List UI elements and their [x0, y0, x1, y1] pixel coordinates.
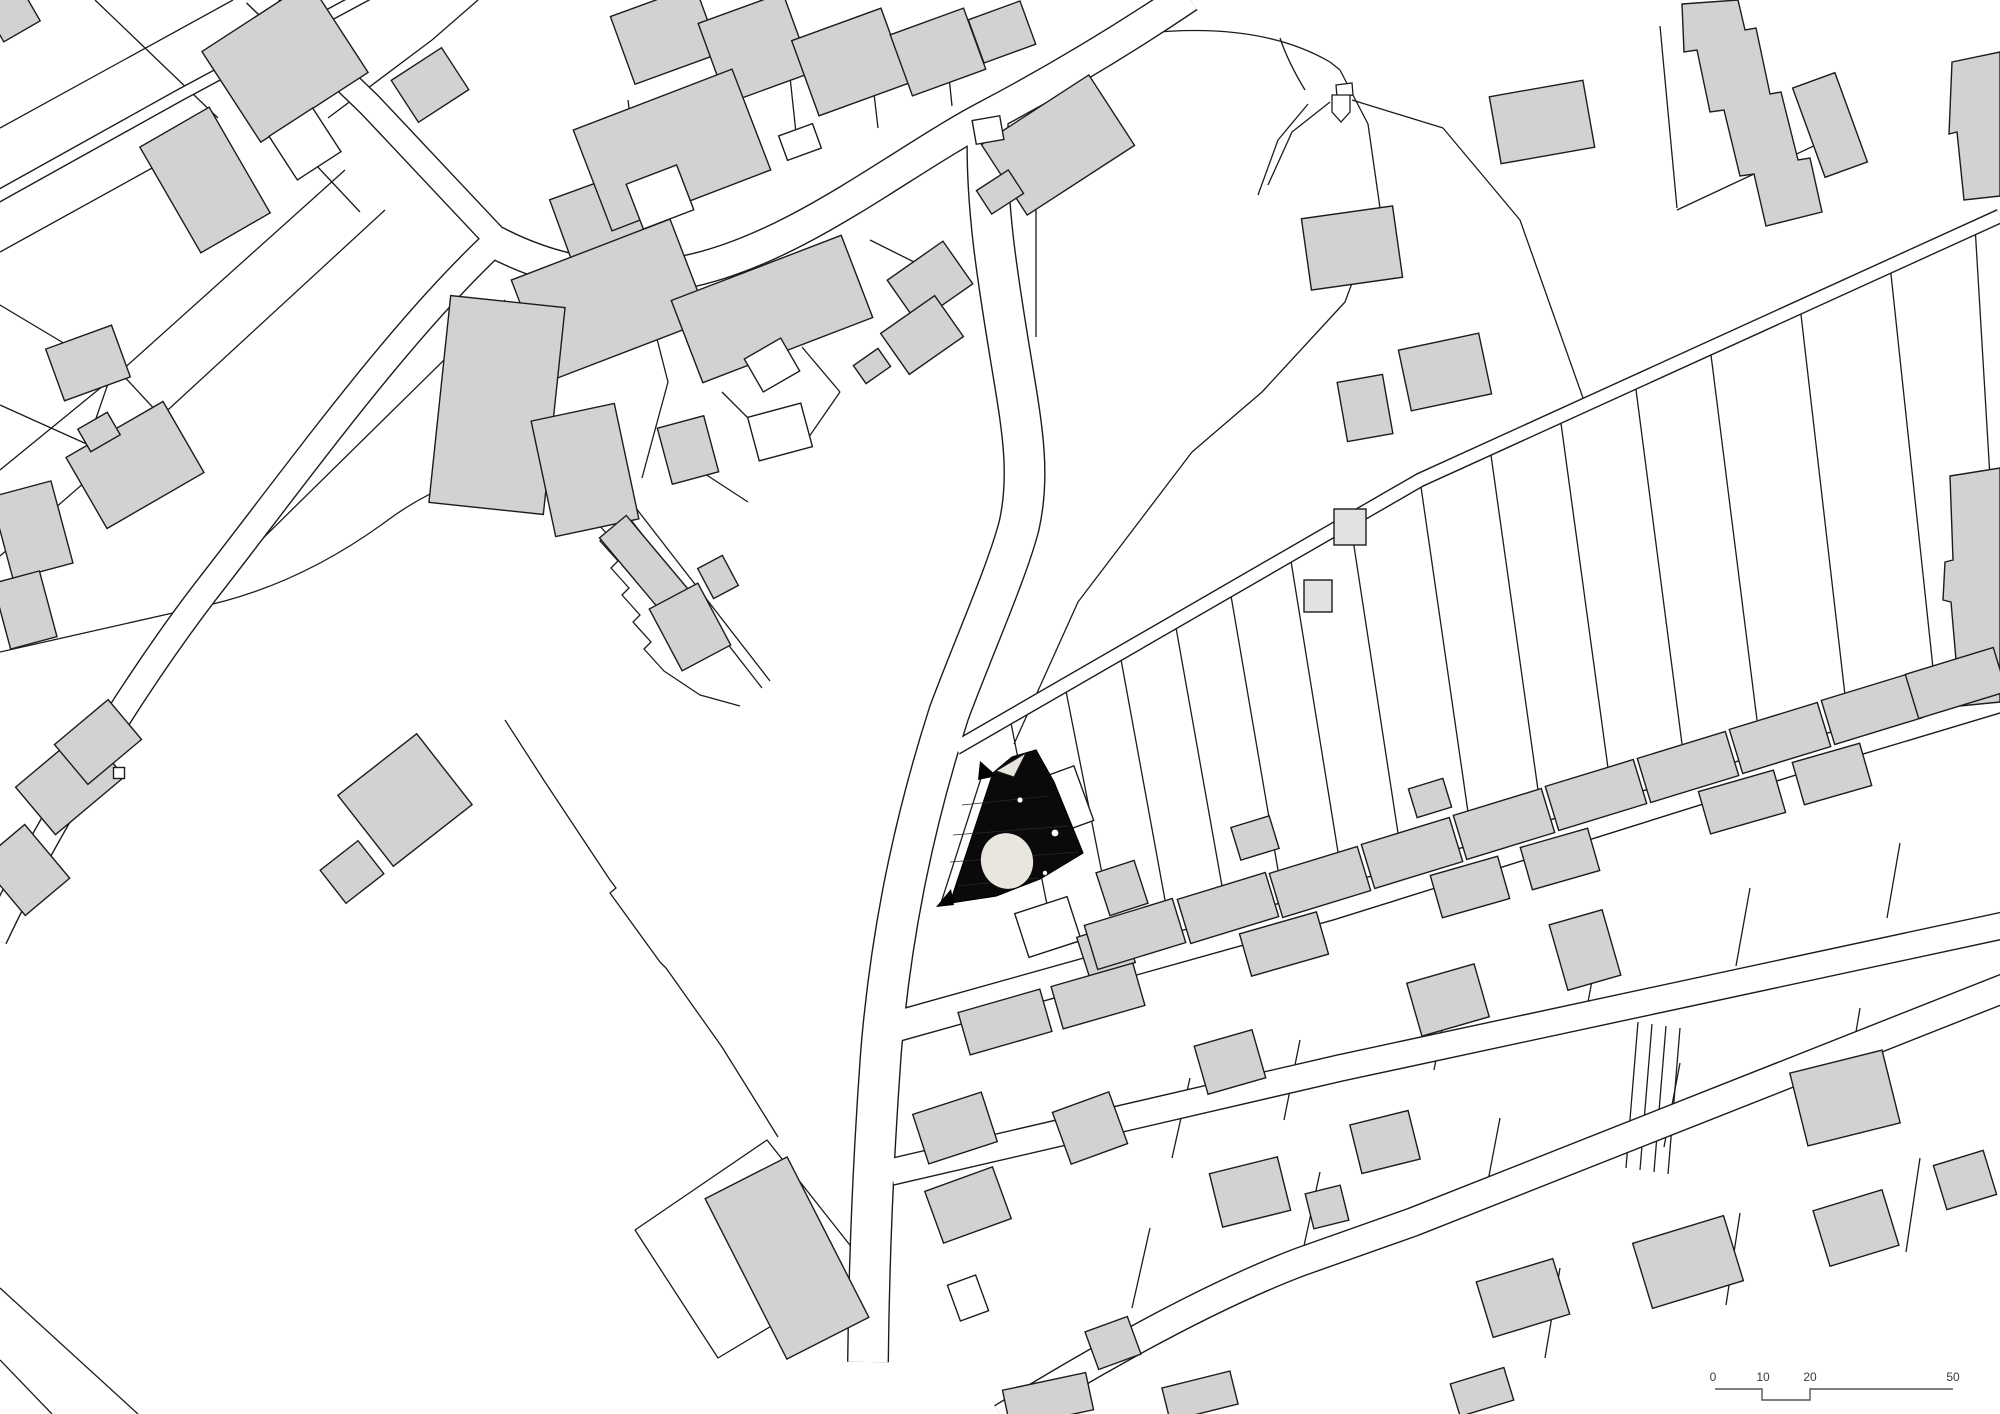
building-footprint: [1337, 374, 1393, 441]
scale-label: 0: [1710, 1370, 1717, 1384]
building-footprint: [1334, 509, 1366, 545]
scale-label: 20: [1803, 1370, 1817, 1384]
building-footprint: [114, 768, 125, 779]
site-column-dot: [1052, 830, 1059, 837]
building-footprint: [1301, 206, 1402, 290]
scale-label: 50: [1946, 1370, 1960, 1384]
site-plan: 0102050: [0, 0, 2000, 1414]
scale-label: 10: [1756, 1370, 1770, 1384]
building-footprint: [972, 116, 1004, 144]
site-column-dot: [1043, 871, 1047, 875]
site-column-dot: [1017, 797, 1022, 802]
building-footprint: [1304, 580, 1332, 612]
site-plan-page: 0102050: [0, 0, 2000, 1414]
building-footprint: [1305, 1185, 1349, 1229]
